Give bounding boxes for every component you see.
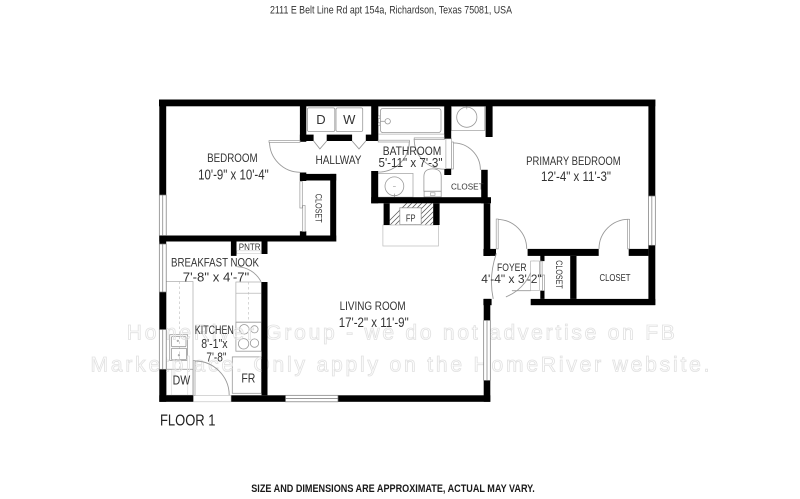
svg-text:BEDROOM: BEDROOM <box>207 153 258 165</box>
svg-text:4'-4" x 3'-2": 4'-4" x 3'-2" <box>481 274 541 286</box>
svg-text:2111 E Belt Line Rd apt 154a,: 2111 E Belt Line Rd apt 154a, Richardson… <box>270 5 513 17</box>
svg-text:SIZE AND DIMENSIONS ARE APPROX: SIZE AND DIMENSIONS ARE APPROXIMATE, ACT… <box>251 483 535 495</box>
svg-text:DW: DW <box>173 373 191 388</box>
svg-text:CLOSET: CLOSET <box>600 273 631 284</box>
svg-text:CLOSET: CLOSET <box>313 194 323 223</box>
svg-text:7'-8": 7'-8" <box>206 350 226 365</box>
svg-text:FR: FR <box>241 370 255 385</box>
svg-text:17'-2" x 11'-9": 17'-2" x 11'-9" <box>339 315 409 330</box>
svg-text:W: W <box>343 112 356 127</box>
svg-text:PRIMARY BEDROOM: PRIMARY BEDROOM <box>526 156 621 168</box>
svg-text:CLOSET: CLOSET <box>451 181 484 191</box>
svg-text:12'-4" x 11'-3": 12'-4" x 11'-3" <box>541 169 611 184</box>
svg-text:BREAKFAST NOOK: BREAKFAST NOOK <box>171 258 259 270</box>
svg-text:5'-11" x 7'-3": 5'-11" x 7'-3" <box>379 155 443 170</box>
svg-text:7'-8" x 4'-7": 7'-8" x 4'-7" <box>183 270 250 285</box>
svg-text:LIVING ROOM: LIVING ROOM <box>340 301 406 313</box>
svg-text:FP: FP <box>406 212 416 224</box>
svg-text:HALLWAY: HALLWAY <box>316 153 362 167</box>
svg-text:FLOOR 1: FLOOR 1 <box>160 412 216 429</box>
svg-text:PNTR: PNTR <box>239 242 261 253</box>
svg-text:D: D <box>316 112 325 127</box>
svg-text:10'-9" x 10'-4": 10'-9" x 10'-4" <box>198 167 269 183</box>
svg-text:CLOSET: CLOSET <box>553 260 564 289</box>
svg-text:FOYER: FOYER <box>497 262 527 274</box>
